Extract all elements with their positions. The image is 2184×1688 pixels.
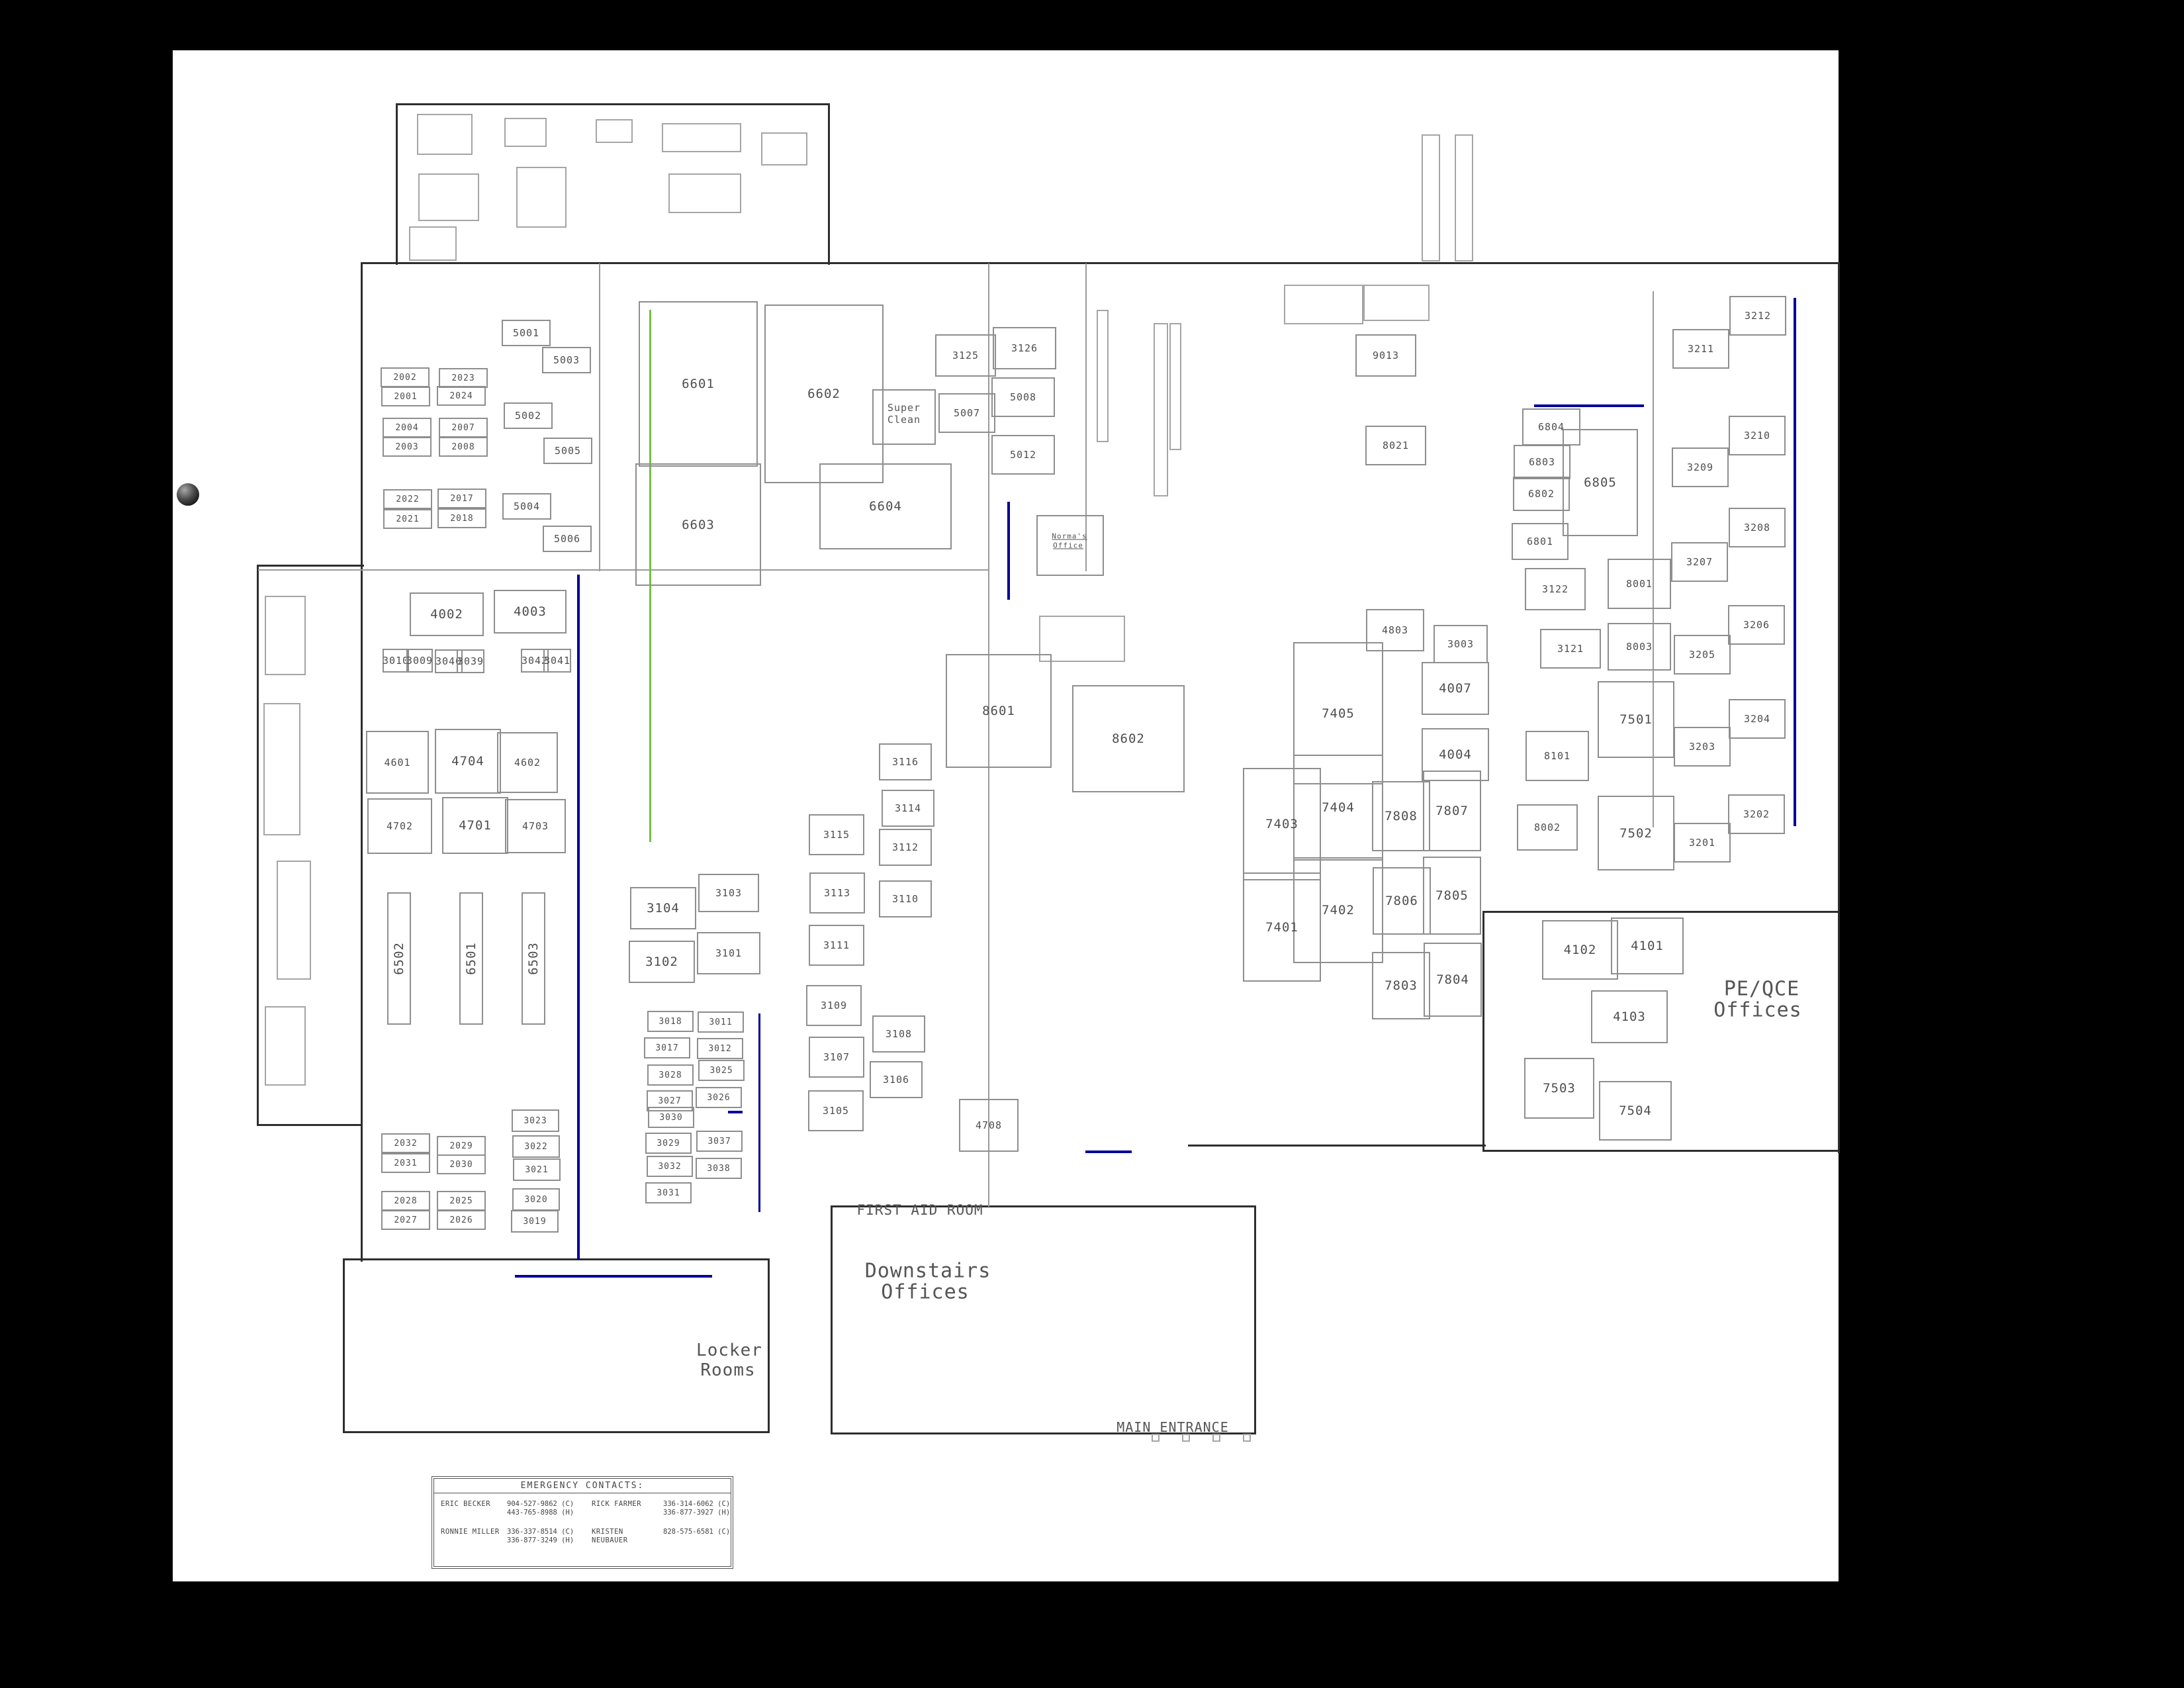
- area-label: Clean: [887, 414, 921, 426]
- room-number: 3203: [1689, 741, 1715, 753]
- room-number: 2024: [449, 391, 473, 401]
- room-3209: 3209: [1672, 447, 1729, 487]
- room-number: 6602: [807, 387, 841, 401]
- room-number: 3121: [1557, 643, 1584, 655]
- room-number: 3107: [823, 1051, 850, 1063]
- furniture-block: [1154, 323, 1168, 496]
- furniture-block: [417, 114, 473, 155]
- room-3107: 3107: [809, 1037, 864, 1078]
- wall: [258, 569, 989, 571]
- highlighted-wall: [1085, 1150, 1132, 1153]
- wall: [343, 1258, 770, 1260]
- furniture-block: [1039, 616, 1125, 662]
- room-3204: 3204: [1729, 699, 1786, 739]
- room-number: 3032: [658, 1162, 681, 1172]
- room-3031: 3031: [645, 1182, 692, 1203]
- room-number: 3204: [1744, 713, 1770, 725]
- contact-name: RONNIE MILLER: [441, 1528, 507, 1545]
- room-2026: 2026: [437, 1210, 486, 1230]
- room-number: 3125: [952, 350, 979, 361]
- room-3122: 3122: [1525, 568, 1586, 610]
- room-2018: 2018: [437, 508, 486, 528]
- room-3125: 3125: [935, 334, 996, 377]
- room-3102: 3102: [629, 941, 695, 983]
- room-4002: 4002: [410, 592, 484, 636]
- room-number: 3025: [709, 1066, 733, 1076]
- room-number: 7806: [1385, 894, 1418, 908]
- wall: [257, 565, 259, 1126]
- room-number: 6604: [869, 499, 902, 514]
- highlighted-wall: [577, 575, 580, 1260]
- room-2022: 2022: [383, 489, 432, 509]
- room-3041: 3041: [543, 649, 571, 673]
- room-number: 3212: [1745, 310, 1771, 322]
- room-number: 3104: [647, 901, 680, 915]
- room-number: 5005: [555, 445, 581, 457]
- room-5001: 5001: [502, 320, 551, 346]
- room-number: 8001: [1626, 578, 1653, 590]
- highlighted-wall: [1007, 502, 1010, 600]
- room-number: 7502: [1619, 826, 1653, 841]
- room-3029: 3029: [645, 1133, 692, 1154]
- room-3109: 3109: [806, 985, 862, 1026]
- room-3111: 3111: [809, 925, 864, 966]
- area-label: FIRST AID ROOM: [856, 1202, 983, 1218]
- room-4702: 4702: [367, 798, 432, 854]
- room-number: 8101: [1544, 750, 1570, 762]
- room-number: 3211: [1688, 343, 1714, 355]
- room-number: 3023: [523, 1116, 547, 1126]
- room-number: 3037: [707, 1137, 731, 1147]
- room-number: 5002: [515, 410, 541, 422]
- wall: [361, 262, 1840, 264]
- room-2029: 2029: [437, 1136, 486, 1156]
- room-number: 2032: [394, 1139, 417, 1149]
- furniture-block: [265, 596, 306, 675]
- room-number: 7403: [1265, 817, 1298, 831]
- room-3022: 3022: [512, 1135, 560, 1158]
- room-number: 3026: [707, 1093, 730, 1103]
- room-number: 3029: [657, 1139, 680, 1149]
- room-3207: 3207: [1671, 542, 1728, 582]
- sphere-marker: [177, 483, 199, 506]
- room-number: 6801: [1527, 536, 1553, 547]
- room-5006: 5006: [543, 526, 592, 552]
- room-3201: 3201: [1674, 823, 1731, 863]
- room-2023: 2023: [439, 368, 488, 388]
- room-3028: 3028: [647, 1064, 694, 1086]
- area-label: Offices: [881, 1281, 969, 1304]
- furniture-block: [265, 1006, 306, 1086]
- room-6802: 6802: [1513, 477, 1570, 511]
- area-label: Downstairs: [865, 1260, 991, 1283]
- room-3019: 3019: [511, 1210, 559, 1233]
- room-6602: 6602: [764, 305, 884, 483]
- room-number: 3103: [715, 887, 742, 899]
- room-number: 4601: [384, 757, 410, 769]
- room-number: 7805: [1435, 888, 1469, 903]
- room-8601: 8601: [946, 654, 1052, 768]
- room-number: 6803: [1529, 456, 1555, 468]
- room-number: 2007: [451, 423, 475, 433]
- contact-phones: 336-314-6062 (C)336-877-3927 (H): [663, 1500, 737, 1517]
- area-label: Locker: [696, 1340, 762, 1360]
- room-3208: 3208: [1729, 508, 1786, 547]
- room-3116: 3116: [879, 743, 932, 780]
- room-3039: 3039: [457, 649, 484, 673]
- room-2021: 2021: [383, 509, 432, 529]
- room-number: 8021: [1383, 440, 1409, 451]
- room-2027: 2027: [381, 1210, 430, 1230]
- room-6501: 6501: [459, 892, 483, 1025]
- furniture-block: [596, 119, 633, 143]
- room-number: 2003: [395, 442, 418, 452]
- furniture-block: [761, 132, 807, 165]
- room-number: 3207: [1686, 556, 1713, 568]
- emergency-contacts-table: EMERGENCY CONTACTS: ERIC BECKER904-527-9…: [433, 1478, 731, 1567]
- room-number: 7501: [1619, 712, 1653, 727]
- room-number: 2002: [393, 373, 416, 383]
- room-number: 2027: [394, 1215, 417, 1225]
- room-4701: 4701: [442, 797, 508, 854]
- room-number: 2004: [395, 423, 418, 433]
- room-3206: 3206: [1728, 605, 1785, 645]
- wall: [599, 263, 600, 571]
- room-number: 3206: [1743, 619, 1770, 631]
- room-6502: 6502: [387, 892, 411, 1025]
- room-5004: 5004: [502, 493, 551, 520]
- furniture-block: [662, 123, 741, 152]
- room-number: 3101: [715, 947, 742, 959]
- room-number: 7803: [1385, 978, 1418, 993]
- room-8001: 8001: [1608, 559, 1671, 609]
- room-3112: 3112: [879, 829, 932, 866]
- room-3032: 3032: [647, 1156, 693, 1177]
- room-3009: 3009: [406, 649, 433, 673]
- area-label: Offices: [1713, 999, 1801, 1022]
- room-4703: 4703: [505, 799, 566, 853]
- room-2025: 2025: [437, 1191, 486, 1211]
- room-number: 5012: [1010, 449, 1036, 461]
- room-3018: 3018: [647, 1011, 694, 1032]
- room-8003: 8003: [1608, 623, 1671, 671]
- furniture-block: [1097, 310, 1109, 442]
- room-number: 6804: [1538, 421, 1565, 433]
- room-4003: 4003: [494, 590, 567, 633]
- room-number: 4102: [1564, 943, 1597, 957]
- room-7504: 7504: [1599, 1081, 1672, 1141]
- room-3114: 3114: [882, 790, 934, 827]
- contact-name: ERIC BECKER: [441, 1500, 507, 1517]
- room-3210: 3210: [1729, 416, 1786, 455]
- room-number: 7402: [1322, 903, 1355, 917]
- room-number: 3003: [1447, 638, 1474, 650]
- room-number: 3105: [823, 1105, 849, 1117]
- room-7401: 7401: [1243, 872, 1321, 982]
- room-4704: 4704: [435, 729, 501, 794]
- room-number: 3021: [525, 1165, 548, 1175]
- room-number: 6601: [682, 377, 715, 391]
- room-number: 3039: [457, 655, 484, 667]
- room-2007: 2007: [439, 418, 488, 438]
- room-number: 4708: [976, 1119, 1002, 1131]
- room-3101: 3101: [697, 932, 760, 974]
- room-number: 4702: [387, 820, 413, 832]
- wall: [257, 565, 364, 567]
- room-3211: 3211: [1672, 329, 1729, 369]
- room-number: 3108: [886, 1028, 912, 1040]
- room-3105: 3105: [808, 1090, 864, 1131]
- room-3108: 3108: [872, 1015, 925, 1053]
- room-number: 3201: [1689, 837, 1715, 849]
- wall: [396, 103, 398, 265]
- room-7807: 7807: [1423, 771, 1481, 851]
- emergency-contacts-grid: ERIC BECKER904-527-9862 (C)443-765-8988 …: [434, 1493, 731, 1546]
- room-7803: 7803: [1372, 952, 1430, 1019]
- room-3126: 3126: [993, 327, 1056, 369]
- room-2030: 2030: [437, 1154, 486, 1174]
- contact-phone: 336-314-6062 (C): [663, 1500, 737, 1509]
- room-5012: 5012: [991, 435, 1055, 475]
- room-number: 5006: [554, 533, 580, 545]
- room-number: 5001: [513, 327, 539, 339]
- room-number: 4003: [514, 604, 547, 619]
- room-6604: 6604: [819, 463, 952, 549]
- room-2031: 2031: [381, 1153, 430, 1173]
- room-number: 3009: [406, 655, 433, 667]
- area-label: PE/QCE: [1724, 978, 1799, 1001]
- room-3038: 3038: [696, 1158, 742, 1179]
- furniture-block: [263, 703, 300, 835]
- furniture-block: [1422, 134, 1440, 261]
- room-number: 3020: [524, 1195, 547, 1205]
- room-3203: 3203: [1674, 727, 1731, 767]
- room-number: 3208: [1744, 522, 1770, 534]
- room-number: 4007: [1439, 681, 1472, 696]
- room-number: 2021: [396, 514, 419, 524]
- room-number: 7401: [1265, 920, 1298, 935]
- room-number: 2028: [394, 1196, 417, 1206]
- room-2032: 2032: [381, 1133, 430, 1153]
- room-9013: 9013: [1355, 334, 1416, 377]
- furniture-block: [516, 167, 567, 228]
- room-5008: 5008: [991, 377, 1055, 417]
- contact-phone: 904-527-9862 (C): [507, 1500, 592, 1509]
- room-number: 3019: [523, 1217, 546, 1227]
- room-3011: 3011: [698, 1011, 744, 1033]
- wall: [1254, 1205, 1256, 1434]
- room-3205: 3205: [1674, 635, 1731, 675]
- room-number: 6805: [1584, 475, 1617, 490]
- room-5003: 5003: [542, 347, 591, 373]
- room-number: 3109: [821, 1000, 847, 1011]
- furniture-block: [1363, 285, 1430, 321]
- room-number: 3030: [659, 1113, 682, 1123]
- room-3025: 3025: [698, 1060, 745, 1081]
- wall: [396, 103, 830, 105]
- room-number: 4002: [430, 607, 463, 622]
- room-6801: 6801: [1512, 523, 1569, 560]
- furniture-block: [668, 173, 741, 213]
- room-number: 9013: [1373, 350, 1399, 361]
- room-number: 8602: [1112, 731, 1145, 746]
- room-7808: 7808: [1372, 781, 1430, 851]
- highlighted-wall: [1534, 404, 1644, 407]
- room-2002: 2002: [381, 367, 430, 387]
- room-number: 2029: [449, 1141, 473, 1151]
- wall: [768, 1258, 770, 1433]
- room-number: 4004: [1439, 747, 1472, 762]
- room-number: 3111: [823, 939, 850, 951]
- room-7806: 7806: [1373, 867, 1431, 935]
- room-number: 3018: [659, 1017, 682, 1027]
- room-2017: 2017: [437, 489, 486, 508]
- room-6805: 6805: [1563, 429, 1638, 536]
- room-6503: 6503: [522, 892, 545, 1025]
- room-3121: 3121: [1540, 629, 1601, 669]
- room-number: 3106: [883, 1074, 909, 1086]
- floorplan-viewer-canvas[interactable]: EMERGENCY CONTACTS: ERIC BECKER904-527-9…: [0, 0, 2184, 1688]
- room-3012: 3012: [697, 1038, 743, 1059]
- room-number: 3122: [1542, 583, 1569, 595]
- room-3037: 3037: [696, 1131, 743, 1152]
- room-number: 2023: [451, 373, 475, 383]
- room-number: 7404: [1322, 800, 1355, 815]
- room-3106: 3106: [870, 1061, 923, 1098]
- room-number: 3115: [823, 829, 850, 841]
- room-number: 2017: [450, 494, 473, 504]
- room-3021: 3021: [513, 1158, 561, 1181]
- room-number: 3112: [892, 841, 919, 853]
- contact-phones: 904-527-9862 (C)443-765-8988 (H): [507, 1500, 592, 1517]
- room-number: 2030: [449, 1160, 473, 1170]
- contact-phone: 443-765-8988 (H): [507, 1509, 592, 1517]
- room-number: 3017: [655, 1043, 678, 1053]
- room-7805: 7805: [1423, 857, 1481, 935]
- furniture-block: [1455, 134, 1473, 261]
- room-5002: 5002: [504, 402, 553, 429]
- room-number: 3010: [383, 655, 409, 667]
- area-label: Super: [887, 402, 921, 414]
- room-8602: 8602: [1072, 685, 1185, 792]
- room-7403: 7403: [1243, 768, 1321, 880]
- area-label: Office: [1053, 541, 1083, 550]
- area-label: Rooms: [700, 1360, 755, 1380]
- room-4007: 4007: [1422, 662, 1489, 715]
- room-3023: 3023: [512, 1109, 559, 1132]
- room-4602: 4602: [497, 732, 558, 793]
- room-number: 4803: [1382, 624, 1408, 636]
- contact-phone: 336-337-8514 (C): [507, 1528, 592, 1536]
- room-number: 2001: [394, 392, 417, 402]
- contact-phones: 828-575-6581 (C): [663, 1528, 737, 1545]
- room-4103: 4103: [1591, 990, 1668, 1043]
- room-number: 8002: [1534, 821, 1561, 833]
- room-3113: 3113: [809, 872, 865, 914]
- room-number: 8601: [982, 704, 1015, 718]
- room-number: 3202: [1743, 808, 1770, 820]
- room-number: 4703: [522, 820, 549, 832]
- room-3017: 3017: [644, 1037, 690, 1058]
- furniture-block: [277, 861, 311, 980]
- room-number: 2026: [449, 1215, 473, 1225]
- room-number: 3027: [658, 1096, 681, 1106]
- room-7804: 7804: [1424, 943, 1482, 1017]
- room-number: 2022: [396, 494, 419, 504]
- furniture-block: [409, 226, 457, 261]
- room-number: 2031: [394, 1158, 417, 1168]
- area-label: MAIN ENTRANCE: [1116, 1419, 1229, 1435]
- contact-name: KRISTEN NEUBAUER: [592, 1528, 663, 1545]
- room-number: 6502: [392, 942, 406, 975]
- room-number: 5003: [553, 354, 580, 366]
- room-number: 4602: [514, 757, 541, 769]
- emergency-contacts-title: EMERGENCY CONTACTS:: [434, 1479, 731, 1493]
- room-number: 5008: [1010, 391, 1036, 403]
- furniture-block: [418, 173, 479, 221]
- room-3003: 3003: [1433, 625, 1488, 663]
- wall: [1482, 911, 1484, 1152]
- highlighted-wall: [1794, 298, 1796, 826]
- room-number: 6503: [526, 942, 541, 975]
- room-3212: 3212: [1729, 296, 1786, 336]
- room-number: 7405: [1322, 706, 1355, 721]
- room-2001: 2001: [381, 387, 430, 406]
- contact-phone: 336-877-3927 (H): [663, 1509, 737, 1517]
- room-number: 3210: [1744, 430, 1770, 442]
- wall: [257, 1124, 363, 1126]
- room-number: 4701: [459, 818, 492, 833]
- room-2008: 2008: [439, 437, 488, 457]
- room-number: 7504: [1619, 1103, 1652, 1118]
- room-number: 2025: [449, 1196, 473, 1206]
- room-3103: 3103: [698, 874, 759, 912]
- room-number: 7804: [1436, 972, 1469, 987]
- wall: [343, 1431, 770, 1433]
- room-number: 3102: [645, 955, 678, 969]
- room-7502: 7502: [1598, 796, 1674, 870]
- room-number: 3031: [657, 1188, 680, 1198]
- room-number: 6603: [682, 518, 715, 532]
- room-number: 3113: [824, 887, 850, 899]
- area-label: Norma's: [1052, 532, 1087, 541]
- room-3026: 3026: [696, 1087, 742, 1108]
- room-number: 3209: [1687, 461, 1713, 473]
- furniture-block: [1169, 323, 1181, 450]
- room-number: 2008: [451, 442, 475, 452]
- room-8101: 8101: [1525, 731, 1589, 781]
- room-number: 3041: [544, 655, 570, 667]
- room-number: 5007: [954, 407, 980, 419]
- room-3110: 3110: [879, 880, 932, 917]
- room-number: 6802: [1528, 488, 1555, 500]
- wall: [1838, 262, 1840, 1153]
- room-number: 3022: [524, 1142, 547, 1152]
- wall: [361, 262, 363, 1262]
- room-number: 3116: [892, 756, 919, 768]
- contact-phone: 336-877-3249 (H): [507, 1536, 592, 1545]
- room-3115: 3115: [809, 814, 864, 855]
- wall: [1482, 911, 1840, 913]
- room-number: 8003: [1626, 641, 1653, 653]
- room-4708: 4708: [959, 1099, 1019, 1152]
- room-number: 3028: [659, 1070, 682, 1080]
- room-number: 6501: [464, 942, 478, 975]
- room-number: 2018: [450, 514, 473, 524]
- room-8021: 8021: [1365, 426, 1426, 465]
- room-6601: 6601: [639, 301, 758, 467]
- room-7503: 7503: [1524, 1058, 1594, 1119]
